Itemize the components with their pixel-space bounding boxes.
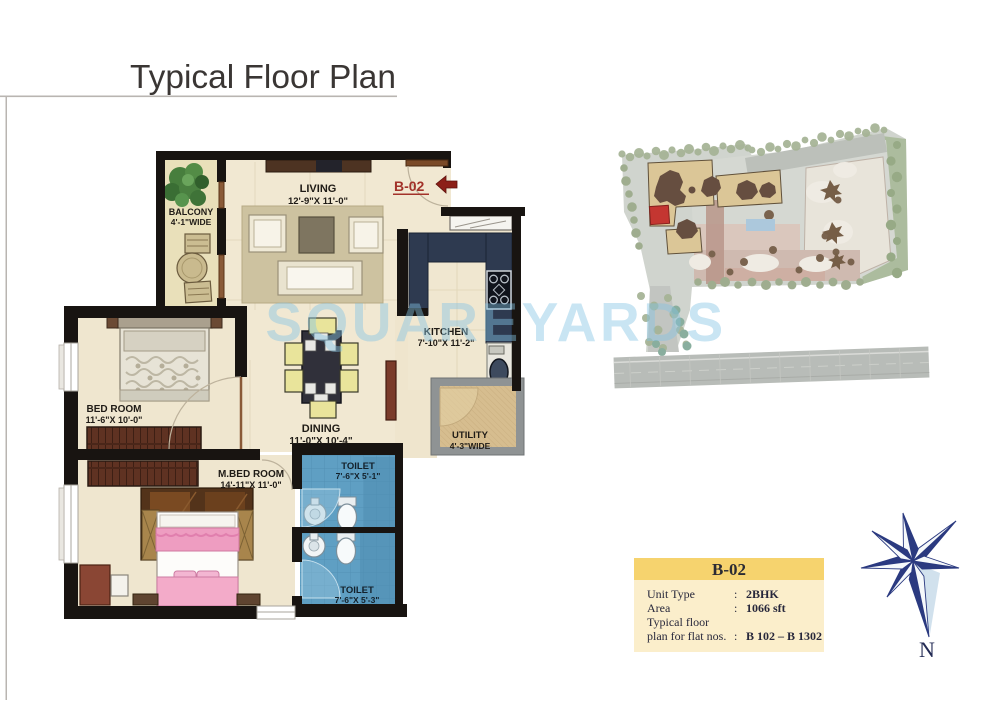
svg-text:2BHK: 2BHK (746, 587, 779, 601)
svg-text:B-02: B-02 (712, 560, 746, 579)
svg-text:4'-1"WIDE: 4'-1"WIDE (171, 217, 212, 227)
svg-text:BED ROOM: BED ROOM (87, 404, 142, 415)
svg-text:Area: Area (647, 601, 671, 615)
svg-text:UTILITY: UTILITY (452, 430, 489, 441)
svg-text:11'-6"X 10'-0": 11'-6"X 10'-0" (86, 415, 143, 425)
svg-text:14'-11"X 11'-0": 14'-11"X 11'-0" (220, 480, 281, 490)
svg-text:12'-9"X 11'-0": 12'-9"X 11'-0" (288, 196, 348, 207)
svg-text:11'-0"X 10'-4": 11'-0"X 10'-4" (289, 436, 352, 447)
svg-text:7'-6"X 5'-3": 7'-6"X 5'-3" (335, 595, 380, 605)
svg-text::: : (734, 629, 737, 643)
svg-text:SQUAREYARDS: SQUAREYARDS (265, 291, 726, 353)
svg-text:LIVING: LIVING (300, 183, 337, 195)
svg-text:plan for flat nos.: plan for flat nos. (647, 629, 726, 643)
svg-text:7'-6"X 5'-1": 7'-6"X 5'-1" (336, 471, 381, 481)
svg-text:B 102 – B 1302: B 102 – B 1302 (746, 629, 822, 643)
svg-text:N: N (919, 637, 935, 662)
svg-text:1066 sft: 1066 sft (746, 601, 786, 615)
svg-text:4'-3"WIDE: 4'-3"WIDE (450, 441, 491, 451)
svg-text:DINING: DINING (302, 423, 341, 435)
svg-text:M.BED ROOM: M.BED ROOM (218, 469, 284, 480)
svg-text:BALCONY: BALCONY (169, 207, 214, 217)
svg-text:Typical floor: Typical floor (647, 615, 709, 629)
svg-text:B-02: B-02 (394, 178, 425, 194)
svg-text:Unit Type: Unit Type (647, 587, 695, 601)
svg-text::: : (734, 601, 737, 615)
svg-text::: : (734, 587, 737, 601)
svg-text:Typical Floor Plan: Typical Floor Plan (130, 58, 396, 95)
